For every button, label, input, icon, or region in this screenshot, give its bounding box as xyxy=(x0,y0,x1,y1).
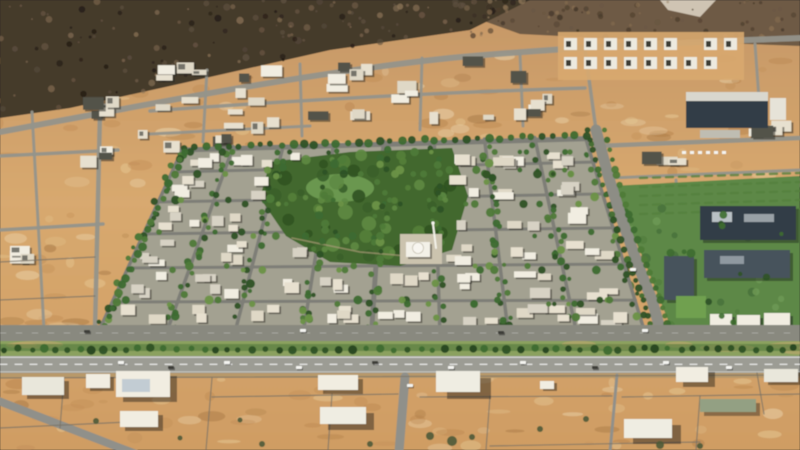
master-plan-development xyxy=(97,127,672,336)
aerial-render-canvas xyxy=(0,0,800,450)
aerial-render-screenshot xyxy=(0,0,800,450)
